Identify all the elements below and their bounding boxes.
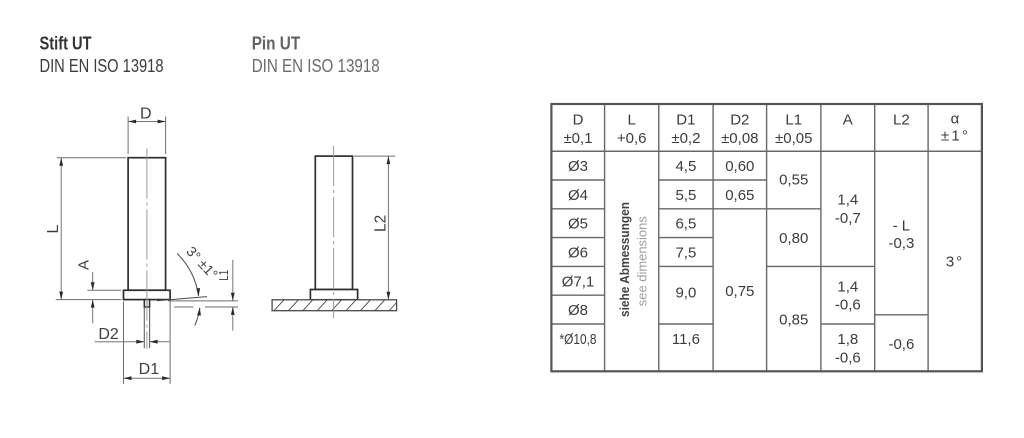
svg-text:A: A — [843, 112, 853, 129]
svg-text:L2: L2 — [893, 112, 910, 129]
svg-text:0,65: 0,65 — [725, 187, 754, 204]
svg-text:α: α — [951, 110, 960, 127]
svg-text:4,5: 4,5 — [675, 158, 696, 175]
svg-text:0,75: 0,75 — [725, 283, 754, 300]
svg-text:0,85: 0,85 — [779, 312, 808, 329]
svg-text:see dimensions: see dimensions — [635, 216, 650, 306]
svg-text:Ø6: Ø6 — [568, 245, 588, 262]
svg-text:+0,6: +0,6 — [617, 130, 647, 147]
svg-text:1,4: 1,4 — [837, 192, 858, 209]
svg-text:6,5: 6,5 — [675, 216, 696, 233]
svg-text:Ø3: Ø3 — [568, 158, 588, 175]
svg-text:±1°: ±1° — [941, 128, 970, 145]
svg-text:D: D — [140, 105, 152, 122]
svg-text:5,5: 5,5 — [675, 187, 696, 204]
svg-text:L: L — [45, 224, 62, 233]
svg-text:7,5: 7,5 — [675, 245, 696, 262]
svg-text:Ø8: Ø8 — [568, 302, 588, 319]
svg-text:L2: L2 — [373, 215, 390, 232]
svg-text:-0,7: -0,7 — [835, 210, 861, 227]
svg-text:D1: D1 — [676, 112, 695, 129]
svg-text:D1: D1 — [139, 361, 160, 378]
svg-text:±0,2: ±0,2 — [671, 130, 700, 147]
svg-text:L1: L1 — [785, 112, 802, 129]
svg-text:0,80: 0,80 — [779, 230, 808, 247]
svg-text:0,60: 0,60 — [725, 158, 754, 175]
svg-text:*Ø10,8: *Ø10,8 — [560, 331, 597, 348]
svg-text:1,4: 1,4 — [837, 278, 858, 295]
svg-text:±0,1: ±0,1 — [563, 130, 592, 147]
svg-text:Ø4: Ø4 — [568, 187, 588, 204]
svg-text:±0,08: ±0,08 — [721, 130, 758, 147]
svg-text:11,6: 11,6 — [672, 331, 700, 348]
svg-text:DIN EN ISO 13918: DIN EN ISO 13918 — [252, 56, 380, 76]
svg-text:Stift UT: Stift UT — [40, 34, 92, 54]
svg-text:D: D — [573, 112, 584, 129]
svg-text:-0,6: -0,6 — [888, 336, 914, 353]
svg-text:siehe Abmessungen: siehe Abmessungen — [617, 202, 632, 317]
svg-text:D2: D2 — [98, 326, 119, 343]
svg-text:A: A — [76, 260, 93, 270]
svg-text:DIN EN ISO 13918: DIN EN ISO 13918 — [40, 56, 164, 76]
svg-text:Ø5: Ø5 — [568, 216, 588, 233]
svg-text:Pin UT: Pin UT — [252, 34, 301, 54]
svg-text:Ø7,1: Ø7,1 — [562, 273, 595, 290]
svg-text:-0,6: -0,6 — [835, 349, 861, 366]
svg-text:-0,3: -0,3 — [888, 235, 914, 252]
svg-text:- L: - L — [893, 218, 911, 235]
svg-text:9,0: 9,0 — [675, 285, 696, 302]
svg-text:3°: 3° — [946, 253, 964, 270]
svg-text:L: L — [628, 112, 636, 129]
svg-text:1,8: 1,8 — [837, 331, 858, 348]
svg-text:L1: L1 — [216, 270, 231, 281]
svg-text:±0,05: ±0,05 — [775, 130, 812, 147]
svg-text:-0,6: -0,6 — [835, 297, 861, 314]
svg-text:D2: D2 — [730, 112, 749, 129]
svg-text:0,55: 0,55 — [779, 172, 808, 189]
